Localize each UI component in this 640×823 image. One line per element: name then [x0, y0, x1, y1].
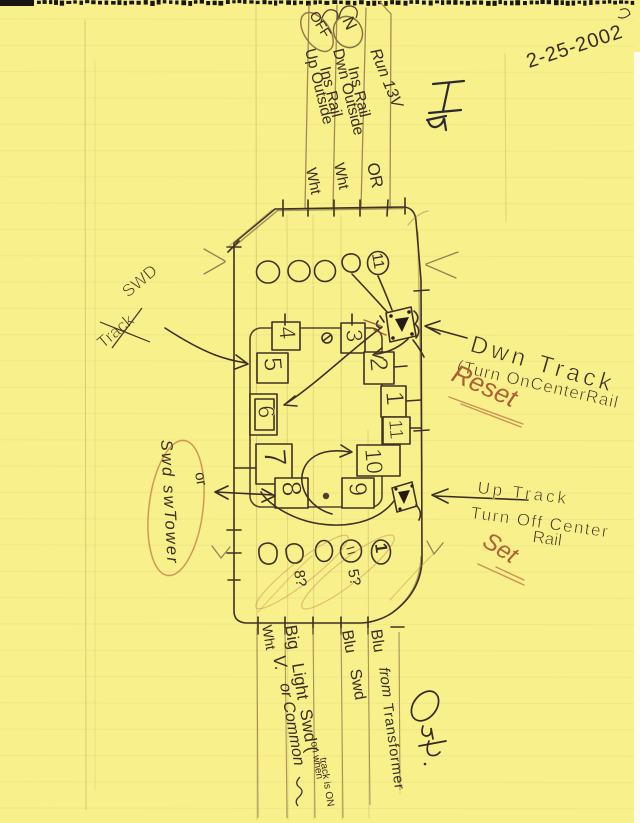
svg-text:Big: Big: [281, 624, 304, 651]
svg-text:Blu: Blu: [367, 628, 387, 653]
svg-text:6: 6: [253, 404, 280, 419]
svg-text:11: 11: [368, 252, 387, 270]
svg-text:10: 10: [360, 447, 388, 475]
svg-text:1: 1: [380, 390, 409, 406]
svg-text:9: 9: [343, 481, 372, 497]
svg-text:7: 7: [257, 448, 293, 468]
svg-text:8?: 8?: [290, 569, 310, 588]
svg-text:Rail: Rail: [531, 527, 563, 550]
svg-text:5: 5: [258, 356, 287, 372]
svg-text:5?: 5?: [344, 568, 364, 587]
svg-text:11: 11: [384, 419, 407, 440]
svg-text:2: 2: [364, 356, 393, 372]
svg-text:4: 4: [274, 325, 301, 340]
